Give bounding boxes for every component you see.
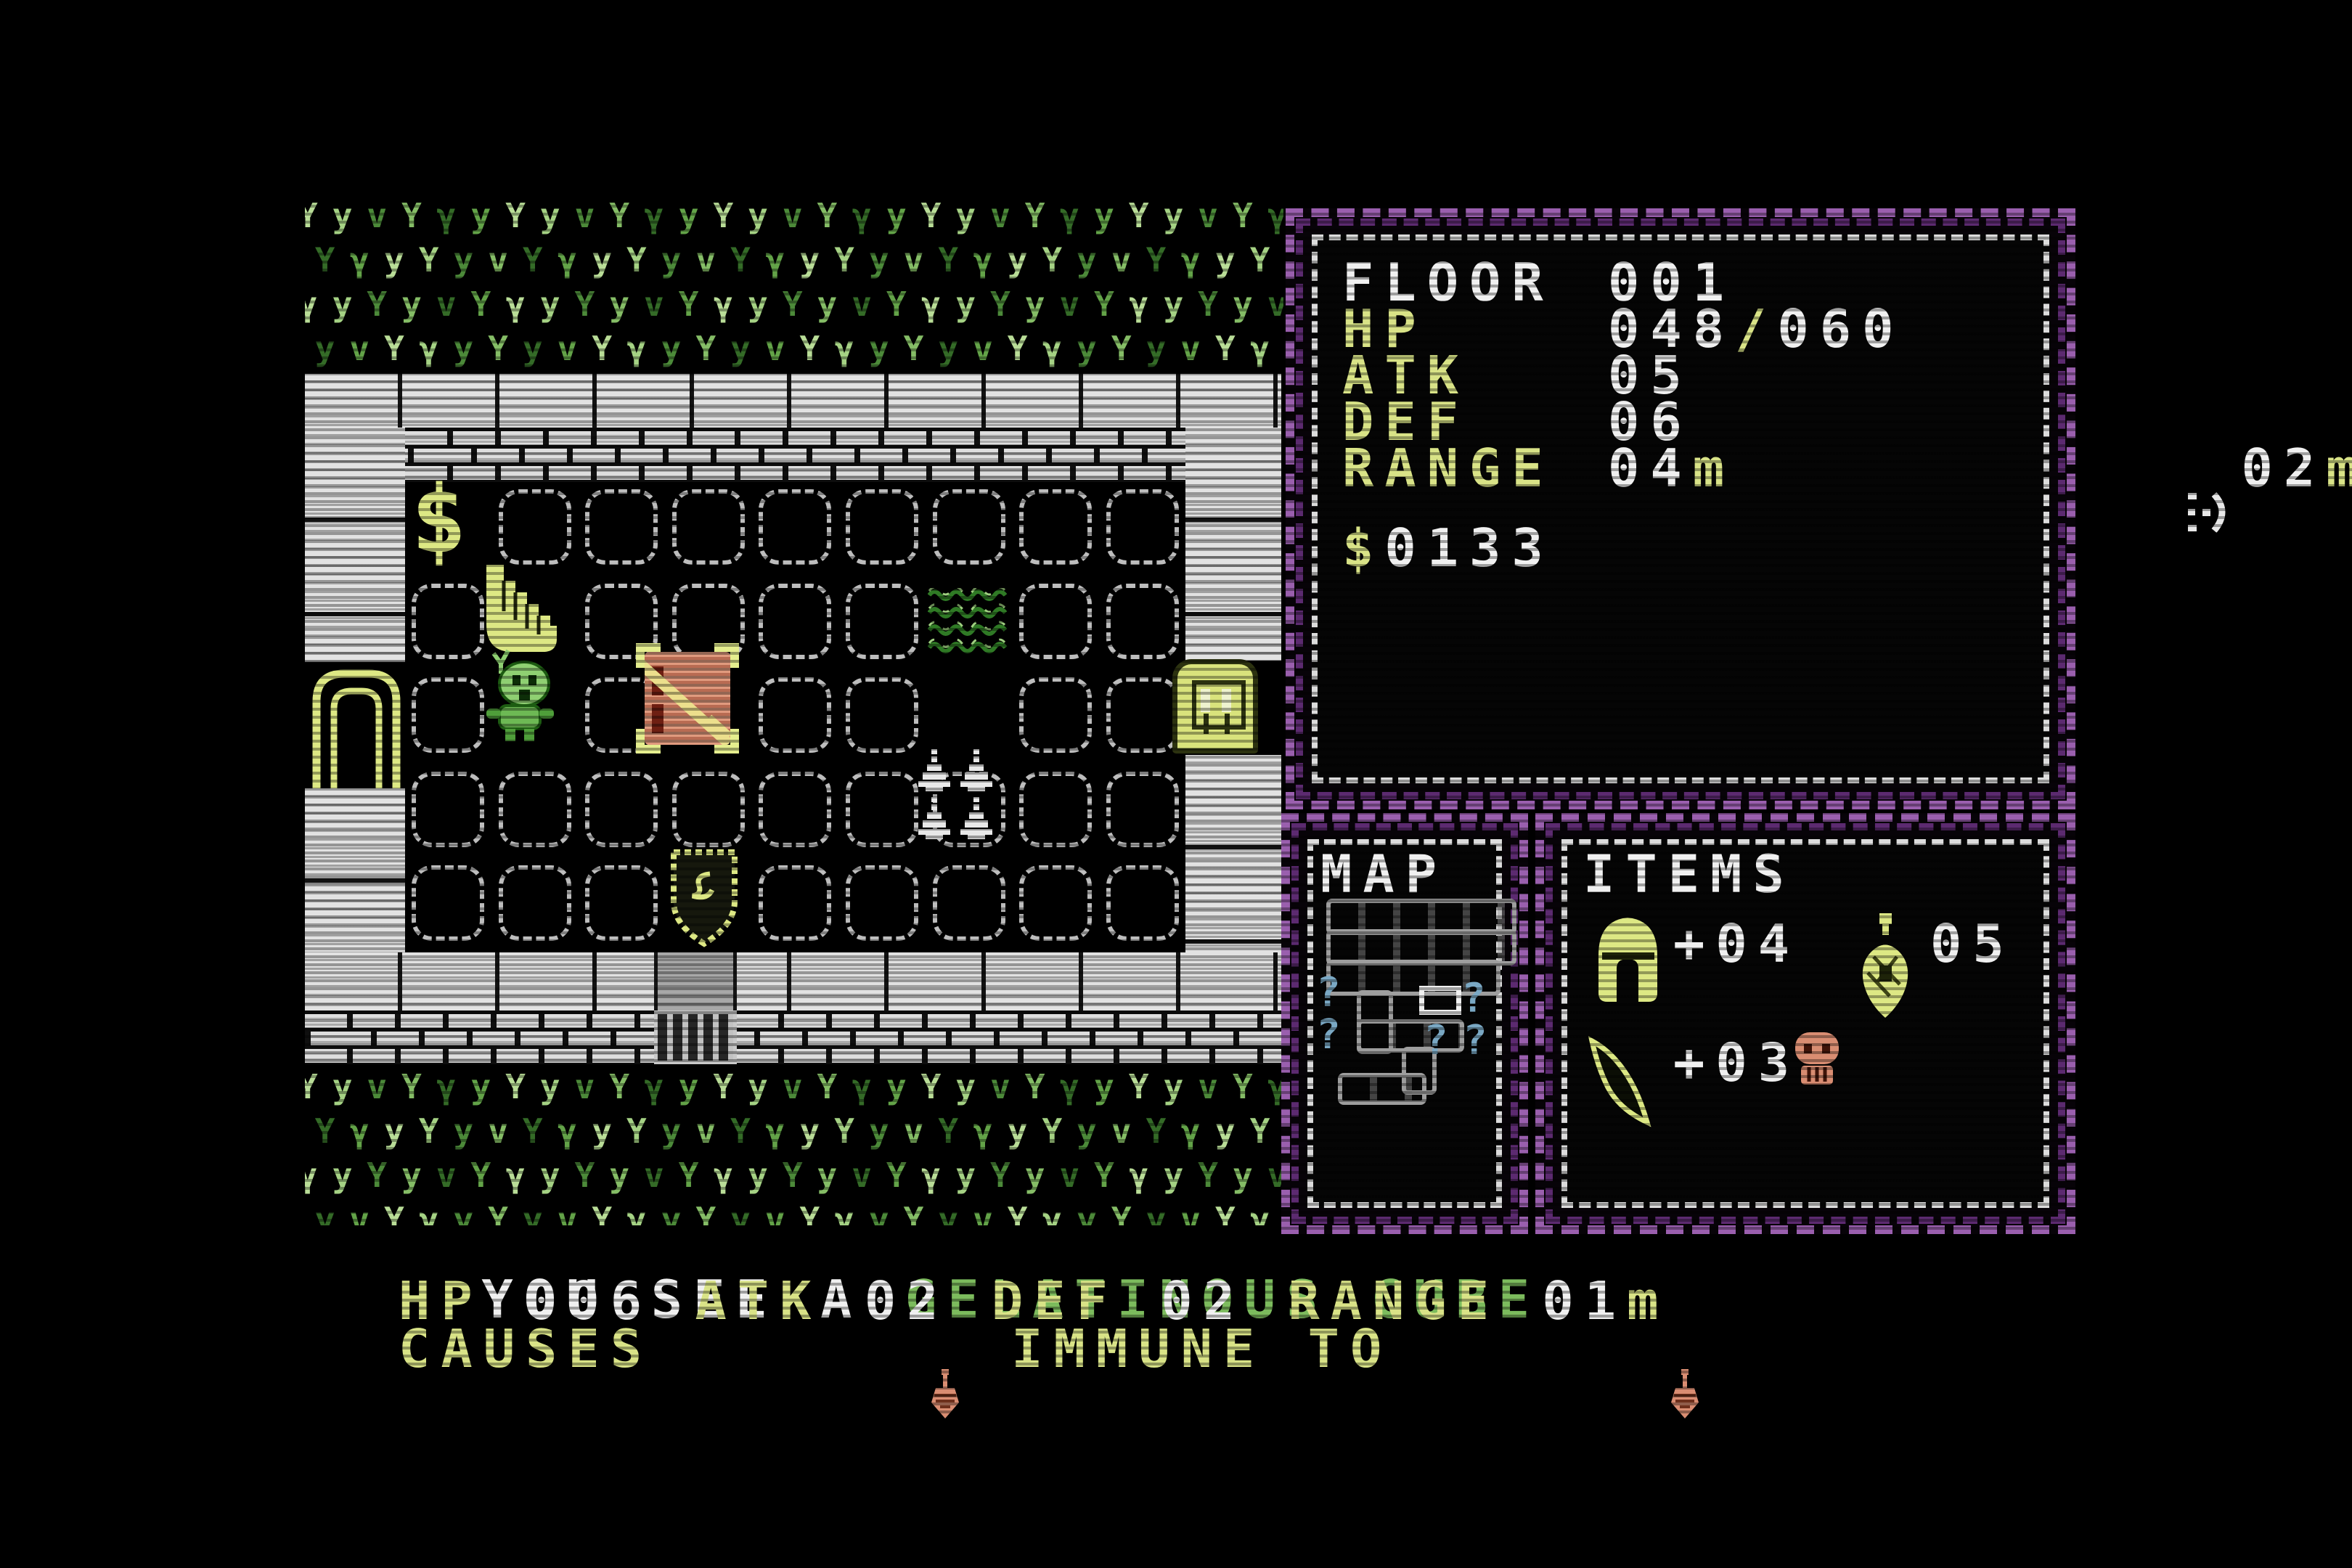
grass-tuft: Y xyxy=(367,1156,401,1195)
brick-course xyxy=(405,431,1187,445)
unexplored-question-mark: ? xyxy=(1316,1015,1341,1055)
grass-tuft: y xyxy=(748,1156,783,1195)
grass-tuft: y xyxy=(1164,196,1199,235)
grass-tuft: v xyxy=(1267,285,1283,324)
floor-tile xyxy=(1019,489,1092,565)
grass-tuft: γ xyxy=(1129,1156,1164,1195)
grass-row: YyvYγyYyvYγyYyvYγyYyvYγyYyvYγy xyxy=(305,329,1283,368)
wall-right-lower xyxy=(1185,755,1281,952)
grass-tuft: y xyxy=(679,196,714,235)
range-label: RANGE xyxy=(1342,445,1608,491)
grass-tuft: y xyxy=(955,196,990,235)
grass-tuft: Y xyxy=(1250,240,1283,279)
grass-tuft: γ xyxy=(305,285,332,324)
grass-tuft: y xyxy=(523,329,558,368)
unexplored-question-mark: ? xyxy=(1463,1021,1487,1061)
floor-tile xyxy=(846,865,918,941)
grass-tuft: γ xyxy=(349,240,384,279)
poison-flask-icon xyxy=(1414,1323,1702,1473)
grass-tuft: Y xyxy=(730,1111,765,1151)
grass-tuft: y xyxy=(869,240,904,279)
grass-tuft: Y xyxy=(713,1067,748,1106)
minimap-box: MAP ????? xyxy=(1307,839,1502,1208)
grass-tuft: Y xyxy=(1111,329,1146,368)
money-glyph: $ xyxy=(411,473,476,568)
grass-tuft: y xyxy=(1077,329,1111,368)
grass-tuft: Y xyxy=(679,285,714,324)
grass-tuft: y xyxy=(332,1156,367,1195)
grass-tuft: γ xyxy=(505,1156,540,1195)
grass-tuft: Y xyxy=(1146,1111,1181,1151)
grass-tuft: γ xyxy=(1059,1067,1094,1106)
grass-tuft: v xyxy=(575,1067,610,1106)
grass-tuft: y xyxy=(401,1156,436,1195)
grass-tuft: y xyxy=(817,1156,852,1195)
floor-tile xyxy=(499,772,571,847)
poison-flask-icon xyxy=(674,1323,962,1473)
grass-tuft: Y xyxy=(523,1111,558,1151)
grass-tuft: v xyxy=(367,196,401,235)
grass-tuft: y xyxy=(817,285,852,324)
spike-trap xyxy=(915,749,996,841)
grass-row: YyvYγyYyvYγyYyvYγyYyvYγyYyvYγy xyxy=(305,1067,1283,1106)
grass-tuft: y xyxy=(401,285,436,324)
brick-course xyxy=(305,1032,1281,1045)
range-ranged-value: 02 xyxy=(2242,445,2327,491)
grass-tuft: v xyxy=(1180,1200,1215,1225)
grass-tuft: y xyxy=(332,285,367,324)
grass-tuft: Y xyxy=(315,1111,350,1151)
grass-tuft: y xyxy=(609,1156,644,1195)
potion-icon[interactable] xyxy=(1847,909,1924,1024)
grass-tuft: Y xyxy=(904,1200,939,1225)
wall-bottom-face xyxy=(305,952,1281,1010)
message-line-monster-stats: HP 006 ATK 02 DEF 02 RANGE 01m xyxy=(399,1278,1669,1324)
unexplored-question-mark: ? xyxy=(1461,979,1486,1019)
minimap-maze: ????? xyxy=(1316,848,1514,1153)
brick-course xyxy=(405,449,1187,462)
grass-row: γyYyvYγyYyvYγyYyvYγyYyvYγyYyvY xyxy=(305,1156,1283,1195)
grass-tuft: Y xyxy=(384,329,419,368)
grass-tuft: γ xyxy=(626,1200,661,1225)
grass-tuft: y xyxy=(332,196,367,235)
grass-tuft: Y xyxy=(990,1156,1025,1195)
floor-tile xyxy=(412,772,484,847)
grass-tuft: γ xyxy=(765,1111,800,1151)
grass-tuft: y xyxy=(540,1156,575,1195)
grass-tuft: γ xyxy=(852,196,886,235)
grass-tuft: y xyxy=(800,1111,835,1151)
grass-tuft: Y xyxy=(938,1111,973,1151)
grass-field-bottom: YyvYγyYyvYγyYyvYγyYyvYγyYyvYγyvYγyYyvYγy… xyxy=(305,1064,1283,1225)
grass-tuft: y xyxy=(454,1200,489,1225)
items-box: ITEMS +04 05 xyxy=(1561,839,2049,1208)
floor-tile xyxy=(933,865,1005,941)
grass-tuft: y xyxy=(315,329,350,368)
grass-tuft: y xyxy=(1094,1067,1129,1106)
game-screen: YyvYγyYyvYγyYyvYγyYyvYγyYyvYγyvYγyYyvYγy… xyxy=(0,0,2352,1568)
grass-tuft: Y xyxy=(575,285,610,324)
grass-tuft: v xyxy=(765,1200,800,1225)
grass-tuft: v xyxy=(488,240,523,279)
grass-tuft: y xyxy=(679,1067,714,1106)
grass-tuft: y xyxy=(384,240,419,279)
grass-tuft: v xyxy=(644,1156,679,1195)
grass-tuft: γ xyxy=(765,240,800,279)
grass-tuft: Y xyxy=(1198,1156,1233,1195)
hand-cursor xyxy=(482,563,565,653)
grass-tuft: v xyxy=(488,1111,523,1151)
wall-bottom-bricks xyxy=(305,1010,1281,1064)
grass-tuft: y xyxy=(1164,1067,1199,1106)
grass-tuft: Y xyxy=(783,285,817,324)
floor-tile xyxy=(499,489,571,565)
grass-tuft: γ xyxy=(1180,1111,1215,1151)
grass-tuft: y xyxy=(748,1067,783,1106)
grass-tuft: Y xyxy=(626,240,661,279)
range-ranged-unit: m xyxy=(2326,445,2352,491)
grass-tuft: Y xyxy=(817,196,852,235)
skull-icon[interactable] xyxy=(1791,1029,1843,1090)
grass-tuft: y xyxy=(1146,1200,1181,1225)
grass-tuft: γ xyxy=(834,1200,869,1225)
grass-tuft: Y xyxy=(401,1067,436,1106)
grass-tuft: γ xyxy=(305,1156,332,1195)
grass-tuft: γ xyxy=(1059,196,1094,235)
grass-tuft: Y xyxy=(1233,196,1267,235)
grass-tuft: y xyxy=(384,1111,419,1151)
grass-tuft: Y xyxy=(713,196,748,235)
grass-tuft: Y xyxy=(609,196,644,235)
door-right-closed[interactable] xyxy=(1172,659,1258,754)
floor-tile xyxy=(1106,772,1179,847)
grass-tuft: γ xyxy=(626,329,661,368)
grass-tuft: y xyxy=(938,1200,973,1225)
wall-left-lower xyxy=(305,788,405,952)
grass-tuft: y xyxy=(869,329,904,368)
floor-tile xyxy=(1019,772,1092,847)
grass-tuft: γ xyxy=(419,329,454,368)
hp-separator: / xyxy=(1735,306,1777,352)
grass-tuft: v xyxy=(436,1156,471,1195)
grass-tuft: v xyxy=(367,1067,401,1106)
door-left-open[interactable] xyxy=(308,662,405,788)
hp-max: 060 xyxy=(1777,306,1904,352)
floor-tile xyxy=(412,677,484,753)
wall-left-upper xyxy=(305,428,405,662)
grass-tuft: y xyxy=(730,329,765,368)
grass-tuft: γ xyxy=(921,1156,956,1195)
grass-tuft: Y xyxy=(904,329,939,368)
grass-tuft: y xyxy=(540,196,575,235)
grass-tuft: Y xyxy=(1233,1067,1267,1106)
grass-tuft: γ xyxy=(973,1111,1008,1151)
message-line-status: CAUSES IMMUNE TO xyxy=(399,1326,1702,1473)
floor-tile xyxy=(1106,677,1179,753)
grass-tuft: γ xyxy=(973,240,1008,279)
grass-tuft: Y xyxy=(1008,329,1042,368)
grass-tuft: v xyxy=(1180,329,1215,368)
grass-tuft: y xyxy=(938,329,973,368)
grass-tuft: y xyxy=(1215,240,1250,279)
grass-tuft: v xyxy=(904,1111,939,1151)
grass-tuft: y xyxy=(955,1156,990,1195)
grass-tuft: y xyxy=(1146,329,1181,368)
door-slot xyxy=(1222,689,1231,712)
causes-label: CAUSES xyxy=(399,1326,653,1372)
grass-tuft: γ xyxy=(436,196,471,235)
grass-tuft: v xyxy=(973,329,1008,368)
grass-tuft: Y xyxy=(626,1111,661,1151)
grass-tuft: γ xyxy=(436,1067,471,1106)
blade-bonus: +03 xyxy=(1673,1040,1800,1086)
grass-tuft: Y xyxy=(1129,196,1164,235)
floor-tile xyxy=(585,772,658,847)
grass-tuft: y xyxy=(609,285,644,324)
grass-tuft: y xyxy=(1215,1111,1250,1151)
grass-tuft: Y xyxy=(1129,1067,1164,1106)
grass-tuft: y xyxy=(1008,1111,1042,1151)
grass-row: vYγyYyvYγyYyvYγyYyvYγyYyvYγyYy xyxy=(305,1111,1283,1151)
grass-tuft: y xyxy=(471,196,506,235)
portcullis-gate[interactable] xyxy=(654,1010,737,1064)
grass-tuft: v xyxy=(1059,285,1094,324)
grass-tuft: Y xyxy=(1042,1111,1077,1151)
floor-tile xyxy=(759,677,831,753)
grass-tuft: v xyxy=(990,1067,1025,1106)
grass-tuft: y xyxy=(1077,1200,1111,1225)
money-pile[interactable]: $ xyxy=(411,473,476,569)
grass-tuft: Y xyxy=(471,1156,506,1195)
grass-tuft: Y xyxy=(1111,1200,1146,1225)
floor-tile xyxy=(585,865,658,941)
floor-tile xyxy=(1106,865,1179,941)
grass-tuft: y xyxy=(454,1111,489,1151)
grass-tuft: γ xyxy=(1129,285,1164,324)
floor-tile xyxy=(412,584,484,659)
grass-tuft: y xyxy=(886,1067,921,1106)
grass-tuft: y xyxy=(748,196,783,235)
door-slot-drip xyxy=(1225,714,1230,734)
grass-tuft: y xyxy=(1233,285,1267,324)
blade-icon[interactable] xyxy=(1582,1035,1662,1140)
grass-tuft: y xyxy=(454,329,489,368)
grass-tuft: y xyxy=(332,1067,367,1106)
wall-top-face xyxy=(305,374,1281,428)
grass-tuft: y xyxy=(869,1200,904,1225)
grass-tuft: v xyxy=(305,1111,315,1151)
grass-tuft: Y xyxy=(1215,329,1250,368)
range-melee-value: 04 xyxy=(1608,445,1693,491)
grass-tuft: v xyxy=(349,1200,384,1225)
targeted-crate[interactable] xyxy=(642,649,733,748)
grass-tuft: v xyxy=(1111,240,1146,279)
helmet-icon[interactable] xyxy=(1593,915,1662,1008)
grass-tuft: v xyxy=(644,285,679,324)
grass-tuft: Y xyxy=(886,285,921,324)
grass-tuft: Y xyxy=(384,1200,419,1225)
grass-tuft: v xyxy=(1111,1111,1146,1151)
grass-tuft: y xyxy=(540,285,575,324)
grass-tuft: Y xyxy=(488,329,523,368)
floor-tile xyxy=(1106,584,1179,659)
grass-tuft: Y xyxy=(1146,240,1181,279)
floor-tile xyxy=(846,584,918,659)
floor-tile xyxy=(1019,865,1092,941)
grass-tuft: γ xyxy=(644,1067,679,1106)
grass-tuft: y xyxy=(1233,1156,1267,1195)
grass-tuft: γ xyxy=(713,285,748,324)
floor-tile xyxy=(672,772,745,847)
grass-tuft: Y xyxy=(1008,1200,1042,1225)
grass-tuft: Y xyxy=(419,1111,454,1151)
potion-count: 05 xyxy=(1930,920,2015,967)
shield-item[interactable] xyxy=(668,846,740,950)
grass-tuft: y xyxy=(1164,1156,1199,1195)
grass-tuft: v xyxy=(558,1200,592,1225)
brick-course xyxy=(305,1014,1281,1028)
target-bracket xyxy=(714,729,739,754)
grass-tuft: Y xyxy=(834,1111,869,1151)
floor-tile xyxy=(1106,489,1179,565)
grass-tuft: v xyxy=(973,1200,1008,1225)
floor-tile xyxy=(1019,677,1092,753)
grass-tuft: γ xyxy=(349,1111,384,1151)
grass-tuft: Y xyxy=(305,329,315,368)
stats-panel-box: FLOOR001 HP048/060 ATK05 DEF06 RANGE04m xyxy=(1312,234,2049,783)
grass-tuft: γ xyxy=(921,285,956,324)
grass-tuft: Y xyxy=(817,1067,852,1106)
grass-tuft: v xyxy=(904,240,939,279)
items-panel: ITEMS +04 05 xyxy=(1535,813,2075,1234)
grass-tuft: Y xyxy=(886,1156,921,1195)
target-bracket xyxy=(714,643,739,668)
wall-top-bricks xyxy=(405,428,1187,482)
grass-tuft: y xyxy=(1025,1156,1060,1195)
grass-tuft: Y xyxy=(305,1067,332,1106)
grass-tuft: v xyxy=(1198,1067,1233,1106)
ranged-attack-icon xyxy=(1763,445,2232,587)
grass-tuft: Y xyxy=(575,1156,610,1195)
floor-tile xyxy=(1019,584,1092,659)
grass-tuft: Y xyxy=(1094,1156,1129,1195)
grass-tuft: Y xyxy=(990,285,1025,324)
grass-tuft: Y xyxy=(1025,1067,1060,1106)
grass-tuft: Y xyxy=(695,1200,730,1225)
range-melee-unit: m xyxy=(1693,445,1735,491)
grass-tuft: Y xyxy=(488,1200,523,1225)
grass-tuft: y xyxy=(661,329,696,368)
grass-tuft: γ xyxy=(505,285,540,324)
floor-tile xyxy=(759,865,831,941)
grass-tuft: y xyxy=(661,1111,696,1151)
grass-tuft: γ xyxy=(1250,1200,1283,1225)
grass-tuft: Y xyxy=(1250,1111,1283,1151)
gelatinous-cube-monster[interactable] xyxy=(478,649,565,745)
unexplored-question-mark: ? xyxy=(1316,973,1341,1013)
grass-tuft: Y xyxy=(523,240,558,279)
grass-tuft: v xyxy=(990,196,1025,235)
grass-tuft: γ xyxy=(558,240,592,279)
grass-tuft: Y xyxy=(938,240,973,279)
grass-tuft: Y xyxy=(679,1156,714,1195)
grass-tuft: Y xyxy=(505,196,540,235)
grass-tuft: y xyxy=(454,240,489,279)
grass-tuft: y xyxy=(748,285,783,324)
grass-tuft: y xyxy=(1094,196,1129,235)
grass-tuft: Y xyxy=(419,240,454,279)
grass-tuft: y xyxy=(886,196,921,235)
grass-tuft: Y xyxy=(1215,1200,1250,1225)
grass-tuft: Y xyxy=(834,240,869,279)
grass-tuft: Y xyxy=(592,329,626,368)
grass-tuft: γ xyxy=(419,1200,454,1225)
helmet-bonus: +04 xyxy=(1673,920,1800,967)
floor-tile xyxy=(499,865,571,941)
grass-tuft: v xyxy=(852,1156,886,1195)
grass-row: γyYyvYγyYyvYγyYyvYγyYyvYγyYyvY xyxy=(305,285,1283,324)
floor-tile xyxy=(759,772,831,847)
grass-tuft: γ xyxy=(644,196,679,235)
door-slot xyxy=(1201,689,1210,712)
brick-course xyxy=(405,466,1187,480)
grass-tuft: Y xyxy=(315,240,350,279)
grass-tuft: γ xyxy=(713,1156,748,1195)
grass-tuft: v xyxy=(852,285,886,324)
grass-tuft: y xyxy=(800,240,835,279)
grass-row: vYγyYyvYγyYyvYγyYyvYγyYyvYγyYy xyxy=(305,240,1283,279)
grass-tuft: Y xyxy=(1198,285,1233,324)
grass-tuft: γ xyxy=(558,1111,592,1151)
grass-tuft: Y xyxy=(592,1200,626,1225)
grass-tuft: y xyxy=(471,1067,506,1106)
items-title: ITEMS xyxy=(1583,851,1795,897)
grass-tuft: y xyxy=(315,1200,350,1225)
grass-tuft: y xyxy=(592,1111,626,1151)
grass-tuft: v xyxy=(575,196,610,235)
grass-tuft: Y xyxy=(471,285,506,324)
moss-patch xyxy=(928,588,1013,655)
grass-tuft: v xyxy=(783,196,817,235)
grass-tuft: v xyxy=(695,240,730,279)
maze-corridor xyxy=(1338,1073,1426,1105)
grass-tuft: Y xyxy=(505,1067,540,1106)
grass-row: YyvYγyYyvYγyYyvYγyYyvYγyYyvYγy xyxy=(305,1200,1283,1225)
grass-tuft: y xyxy=(955,1067,990,1106)
grass-tuft: Y xyxy=(1042,240,1077,279)
immune-label: IMMUNE TO xyxy=(1011,1326,1392,1372)
grass-tuft: Y xyxy=(921,196,956,235)
target-bracket xyxy=(636,729,661,754)
grass-tuft: v xyxy=(1059,1156,1094,1195)
grass-tuft: y xyxy=(1077,240,1111,279)
grass-tuft: γ xyxy=(834,329,869,368)
grass-tuft: y xyxy=(1025,285,1060,324)
brick-course xyxy=(305,1049,1281,1063)
grass-tuft: v xyxy=(436,285,471,324)
floor-tile xyxy=(585,489,658,565)
grass-tuft: y xyxy=(730,1200,765,1225)
grass-tuft: v xyxy=(305,240,315,279)
grass-tuft: γ xyxy=(1180,240,1215,279)
grass-tuft: Y xyxy=(730,240,765,279)
floor-tile xyxy=(933,489,1005,565)
grass-tuft: γ xyxy=(1042,329,1077,368)
grass-tuft: y xyxy=(1164,285,1199,324)
floor-tile xyxy=(672,489,745,565)
grass-tuft: γ xyxy=(1042,1200,1077,1225)
stats-panel: FLOOR001 HP048/060 ATK05 DEF06 RANGE04m xyxy=(1286,208,2075,809)
